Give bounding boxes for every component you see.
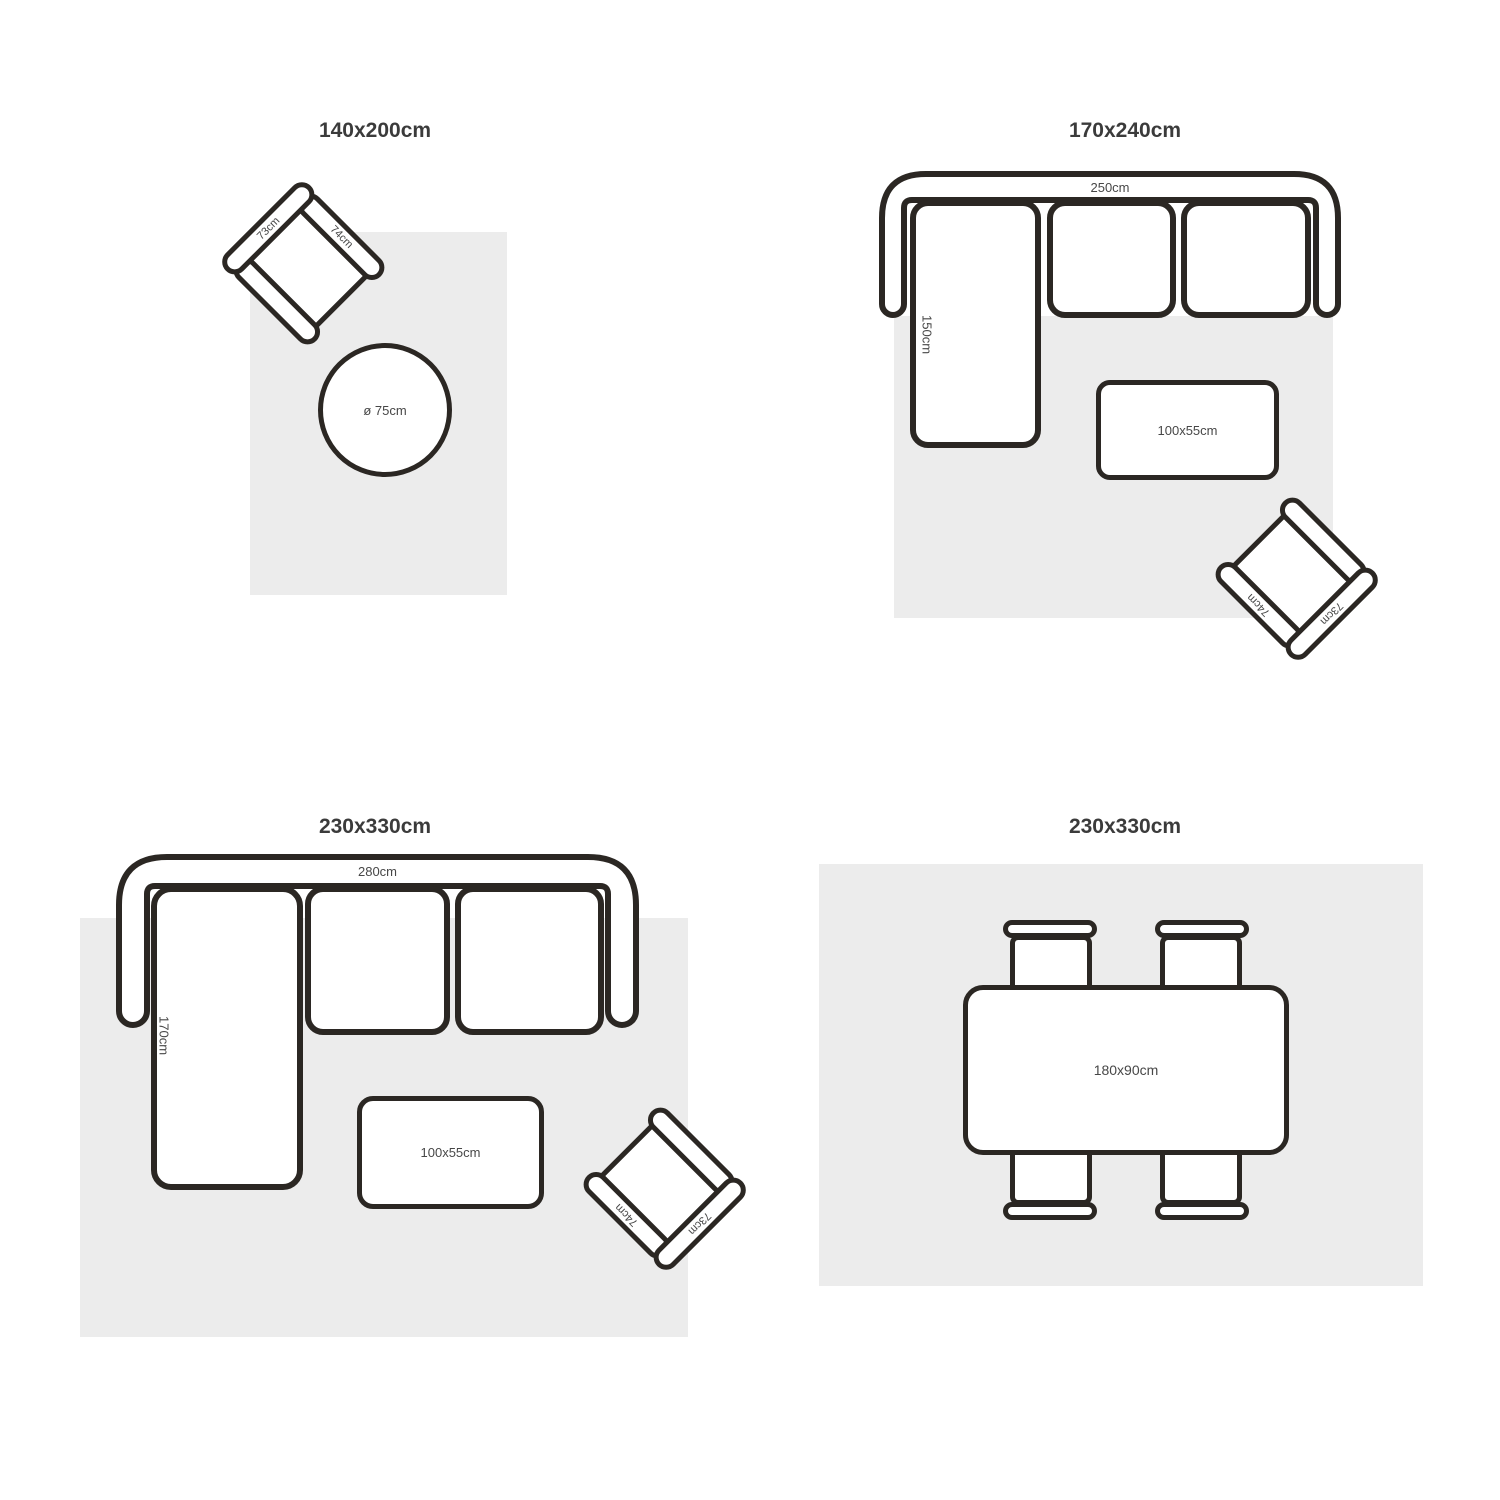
round-table: ø 75cm — [318, 343, 452, 477]
sofa-depth-dimension: 150cm — [920, 315, 935, 354]
panel4-size-title: 230x330cm — [750, 815, 1500, 843]
round-table-dimension: ø 75cm — [363, 403, 406, 418]
coffee-table: 100x55cm — [1096, 380, 1279, 480]
sofa-depth-label-wrap: 150cm — [916, 305, 938, 365]
sofa-depth-dimension: 170cm — [157, 1016, 172, 1055]
sofa-width-dimension: 280cm — [358, 864, 397, 879]
sofa-cushion — [455, 886, 604, 1035]
sofa-width-dimension: 250cm — [1090, 180, 1129, 195]
coffee-table: 100x55cm — [357, 1096, 544, 1209]
coffee-table-dimension: 100x55cm — [421, 1145, 481, 1160]
armchair-back-dimension: 73cm — [1318, 600, 1346, 628]
dining-chair-back — [1155, 1202, 1249, 1220]
coffee-table-dimension: 100x55cm — [1158, 423, 1218, 438]
dining-chair-back — [1003, 920, 1097, 938]
sofa-width-label-wrap: 250cm — [882, 175, 1338, 199]
sofa-cushion — [305, 886, 450, 1035]
sofa-cushion — [1181, 200, 1311, 318]
rug-size-guide: 140x200cm 74cm 73cm ø 75cm 170x240cm 250… — [0, 0, 1500, 1500]
dining-chair-back — [1155, 920, 1249, 938]
sofa-width-label-wrap: 280cm — [116, 858, 639, 884]
dining-chair-back — [1003, 1202, 1097, 1220]
armchair-back-dimension: 73cm — [686, 1210, 714, 1238]
dining-table: 180x90cm — [963, 985, 1289, 1155]
dining-table-dimension: 180x90cm — [1094, 1062, 1159, 1078]
panel1-size-title: 140x200cm — [0, 119, 750, 147]
sofa-depth-label-wrap: 170cm — [153, 1006, 175, 1066]
sofa-cushion — [1047, 200, 1176, 318]
panel3-size-title: 230x330cm — [0, 815, 750, 843]
panel2-size-title: 170x240cm — [750, 119, 1500, 147]
